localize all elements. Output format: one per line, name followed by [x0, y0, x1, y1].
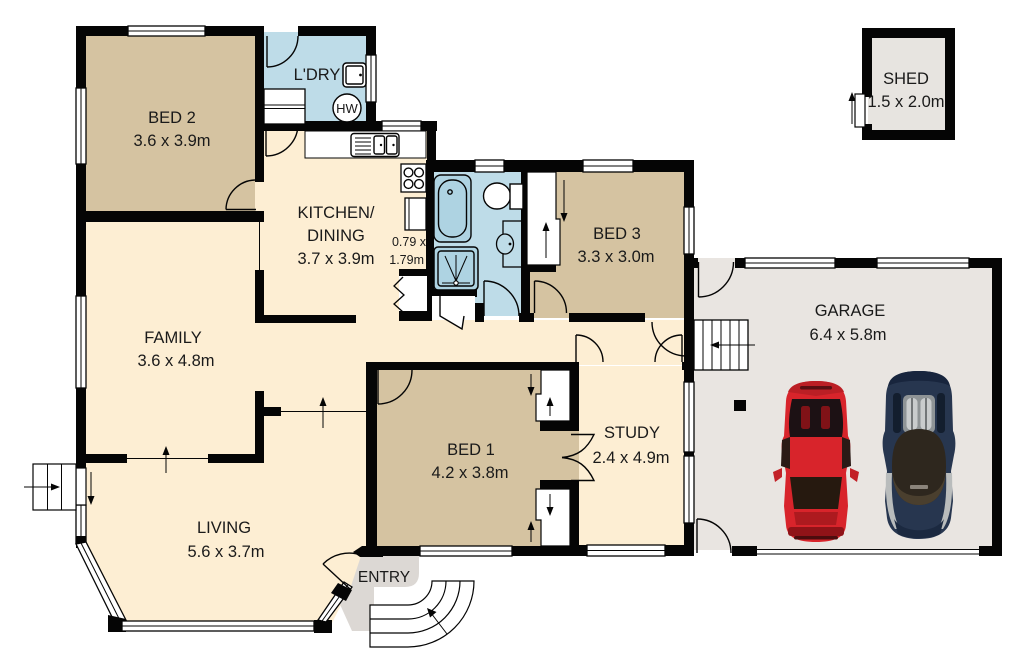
- svg-text:STUDY: STUDY: [604, 424, 660, 442]
- svg-text:FAMILY: FAMILY: [144, 329, 201, 347]
- svg-text:5.6 x 3.7m: 5.6 x 3.7m: [187, 543, 264, 561]
- svg-text:4.2 x 3.8m: 4.2 x 3.8m: [431, 464, 508, 482]
- svg-text:BED 1: BED 1: [447, 441, 495, 459]
- svg-text:6.4 x 5.8m: 6.4 x 5.8m: [809, 326, 886, 344]
- svg-text:BED 2: BED 2: [148, 109, 196, 127]
- svg-text:0.79 x: 0.79 x: [392, 235, 427, 249]
- svg-text:BED 3: BED 3: [593, 225, 641, 243]
- svg-text:GARAGE: GARAGE: [815, 302, 886, 320]
- svg-text:3.6 x 4.8m: 3.6 x 4.8m: [137, 352, 214, 370]
- svg-text:SHED: SHED: [883, 70, 929, 88]
- svg-text:KITCHEN/: KITCHEN/: [297, 204, 374, 222]
- svg-text:HW: HW: [336, 101, 358, 116]
- svg-text:ENTRY: ENTRY: [358, 569, 410, 586]
- svg-text:L'DRY: L'DRY: [294, 66, 341, 84]
- svg-text:LIVING: LIVING: [197, 519, 251, 537]
- svg-text:1.79m: 1.79m: [389, 253, 424, 267]
- svg-text:2.4 x 4.9m: 2.4 x 4.9m: [592, 449, 669, 467]
- svg-text:3.6 x 3.9m: 3.6 x 3.9m: [133, 132, 210, 150]
- svg-text:3.3 x 3.0m: 3.3 x 3.0m: [577, 248, 654, 266]
- svg-text:DINING: DINING: [307, 227, 365, 245]
- svg-text:1.5 x 2.0m: 1.5 x 2.0m: [867, 93, 944, 111]
- svg-text:3.7 x 3.9m: 3.7 x 3.9m: [297, 250, 374, 268]
